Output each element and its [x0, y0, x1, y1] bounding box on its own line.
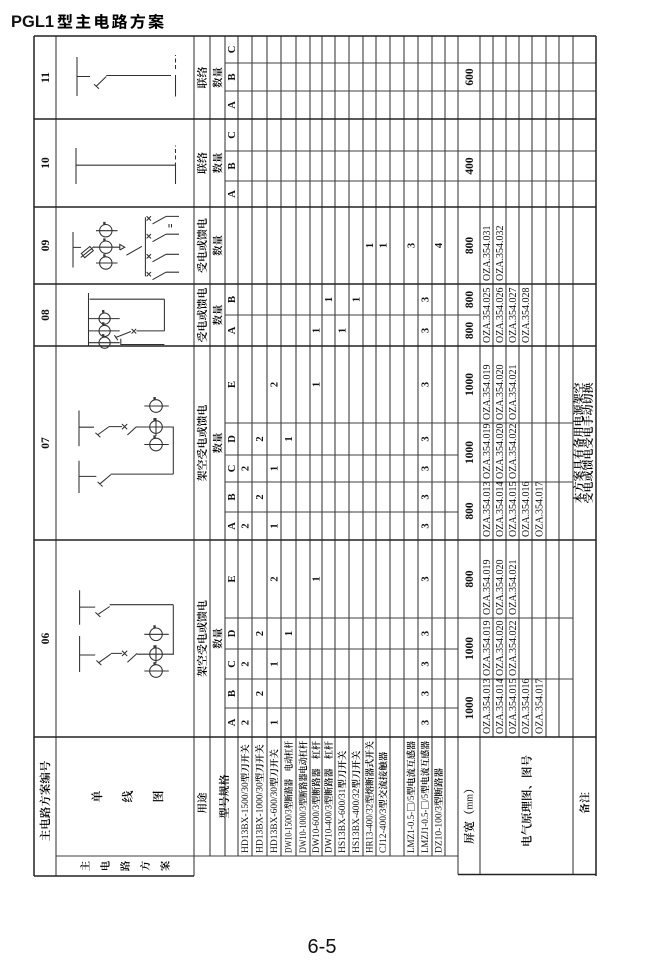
svg-text:A: A: [227, 326, 238, 334]
svg-text:3: 3: [421, 631, 432, 636]
svg-text:HD13BX-1500/30: HD13BX-1500/30: [241, 782, 251, 853]
svg-text:C: C: [227, 660, 238, 668]
svg-text:DW10-1000/3: DW10-1000/3: [298, 806, 309, 853]
svg-text:OZA.354.027: OZA.354.027: [508, 287, 519, 343]
svg-text:OZA.354.014: OZA.354.014: [495, 678, 506, 734]
svg-text:3: 3: [407, 243, 418, 248]
svg-text:1: 1: [338, 328, 349, 333]
svg-text:1000: 1000: [464, 696, 476, 719]
svg-text:800: 800: [464, 570, 476, 588]
svg-text:1000: 1000: [464, 441, 476, 464]
svg-text:09: 09: [40, 240, 52, 252]
svg-text:800: 800: [464, 291, 476, 309]
svg-text:OZA.354.025: OZA.354.025: [482, 287, 493, 343]
svg-text:OZA.354.019: OZA.354.019: [482, 423, 493, 479]
svg-text:1: 1: [312, 382, 323, 387]
svg-text:800: 800: [464, 237, 476, 255]
svg-text:800: 800: [464, 322, 476, 340]
svg-text:1000: 1000: [464, 373, 476, 396]
svg-text:OZA.354.019: OZA.354.019: [482, 364, 493, 420]
svg-text:1000: 1000: [464, 637, 476, 660]
svg-text:DW10-1500/3: DW10-1500/3: [283, 809, 294, 853]
svg-text:6-5: 6-5: [308, 936, 337, 958]
svg-text:OZA.354.021: OZA.354.021: [508, 364, 519, 420]
svg-text:OZA.354.019: OZA.354.019: [482, 620, 493, 676]
svg-text:2: 2: [270, 382, 281, 387]
svg-text:OZA.354.013: OZA.354.013: [482, 678, 493, 734]
svg-text:DW10-600/3: DW10-600/3: [312, 805, 322, 853]
svg-text:C: C: [227, 465, 238, 473]
svg-text:11: 11: [40, 72, 52, 83]
svg-text:1: 1: [270, 720, 281, 725]
svg-text:OZA.354.016: OZA.354.016: [521, 481, 532, 537]
svg-text:2: 2: [255, 691, 266, 696]
svg-text:DZ10-100/3: DZ10-100/3: [435, 806, 445, 853]
svg-text:3: 3: [421, 523, 432, 528]
svg-text:1: 1: [284, 436, 295, 441]
svg-text:2: 2: [241, 661, 252, 666]
svg-text:C: C: [227, 46, 238, 54]
svg-text:PGL1: PGL1: [11, 13, 54, 31]
svg-text:CJ12-400/3: CJ12-400/3: [379, 808, 389, 853]
svg-text:OZA.354.016: OZA.354.016: [521, 678, 532, 734]
svg-text:OZA.354.017: OZA.354.017: [534, 678, 545, 734]
svg-text:E: E: [227, 381, 238, 388]
svg-text:HD13BX-1000/30: HD13BX-1000/30: [256, 782, 266, 853]
svg-text:1: 1: [312, 328, 323, 333]
svg-text:B: B: [227, 493, 238, 500]
svg-text:OZA.354.022: OZA.354.022: [508, 423, 519, 479]
svg-text:A: A: [227, 522, 238, 530]
svg-text:E: E: [227, 575, 238, 582]
svg-text:OZA.354.020: OZA.354.020: [495, 423, 506, 479]
svg-text:OZA.354.015: OZA.354.015: [508, 678, 519, 734]
svg-text:3: 3: [421, 466, 432, 471]
svg-text:3: 3: [421, 436, 432, 441]
svg-text:3: 3: [421, 661, 432, 666]
svg-text:HS13BX-400/32: HS13BX-400/32: [352, 788, 362, 853]
svg-text:HR13-400/32: HR13-400/32: [364, 803, 374, 853]
svg-text:OZA.354.022: OZA.354.022: [508, 620, 519, 676]
svg-text:OZA.354.017: OZA.354.017: [534, 481, 545, 537]
svg-text:C: C: [227, 131, 238, 139]
svg-text:OZA.354.021: OZA.354.021: [508, 559, 519, 615]
svg-text:HS13BX-600/31: HS13BX-600/31: [338, 788, 348, 853]
svg-text:3: 3: [421, 328, 432, 333]
svg-text:2: 2: [255, 436, 266, 441]
svg-text:LMZ1-0.5-: LMZ1-0.5-: [407, 812, 417, 853]
svg-text:2: 2: [255, 631, 266, 636]
svg-text:10: 10: [40, 157, 52, 169]
svg-text:OZA.354.032: OZA.354.032: [495, 225, 506, 281]
svg-text:600: 600: [464, 68, 476, 86]
svg-text:1: 1: [324, 297, 335, 302]
svg-text:4: 4: [434, 242, 445, 248]
svg-text:HD13BX-600/30: HD13BX-600/30: [270, 787, 280, 853]
svg-text:2: 2: [241, 720, 252, 725]
svg-text:mm: mm: [464, 794, 475, 810]
svg-text:3: 3: [421, 382, 432, 387]
svg-text:OZA.354.014: OZA.354.014: [495, 481, 506, 537]
svg-text:1: 1: [270, 466, 281, 471]
svg-text:08: 08: [40, 309, 52, 321]
svg-text:A: A: [227, 101, 238, 109]
svg-text:/5: /5: [407, 795, 417, 802]
svg-text:1: 1: [270, 523, 281, 528]
svg-text:OZA.354.019: OZA.354.019: [482, 559, 493, 615]
svg-text:1: 1: [312, 576, 323, 581]
svg-text:3: 3: [421, 720, 432, 725]
svg-text:3: 3: [421, 494, 432, 499]
svg-text:OZA.354.031: OZA.354.031: [482, 225, 493, 281]
svg-text:3: 3: [421, 691, 432, 696]
svg-text:OZA.354.028: OZA.354.028: [521, 287, 532, 343]
svg-text:2: 2: [241, 466, 252, 471]
svg-text:OZA.354.020: OZA.354.020: [495, 620, 506, 676]
svg-text:B: B: [227, 296, 238, 303]
svg-text:D: D: [227, 629, 238, 637]
svg-text:1: 1: [284, 631, 295, 636]
svg-text:OZA.354.013: OZA.354.013: [482, 481, 493, 537]
svg-text:2: 2: [270, 576, 281, 581]
svg-text:06: 06: [40, 633, 52, 645]
svg-text:1: 1: [365, 243, 376, 248]
svg-text:OZA.354.015: OZA.354.015: [508, 481, 519, 537]
svg-text:400: 400: [464, 157, 476, 175]
svg-text:800: 800: [464, 502, 476, 520]
svg-text:D: D: [227, 435, 238, 443]
svg-text:B: B: [227, 73, 238, 80]
svg-text:1: 1: [270, 661, 281, 666]
svg-text:OZA.354.020: OZA.354.020: [495, 364, 506, 420]
svg-text:2: 2: [241, 523, 252, 528]
svg-text:A: A: [227, 718, 238, 726]
svg-text:2: 2: [255, 494, 266, 499]
svg-text:3: 3: [421, 297, 432, 302]
svg-text:07: 07: [40, 437, 52, 449]
svg-text:LMZJ1-0.5-: LMZJ1-0.5-: [420, 810, 430, 853]
svg-text:OZA.354.020: OZA.354.020: [495, 559, 506, 615]
svg-text:B: B: [227, 162, 238, 169]
svg-text:1: 1: [379, 243, 390, 248]
svg-text:/5: /5: [420, 794, 430, 801]
svg-text:A: A: [227, 190, 238, 198]
svg-text:B: B: [227, 690, 238, 697]
svg-text:OZA.354.026: OZA.354.026: [495, 287, 506, 343]
svg-text:1: 1: [352, 297, 363, 302]
svg-text:3: 3: [421, 576, 432, 581]
svg-text:DW10-400/3: DW10-400/3: [325, 805, 335, 853]
